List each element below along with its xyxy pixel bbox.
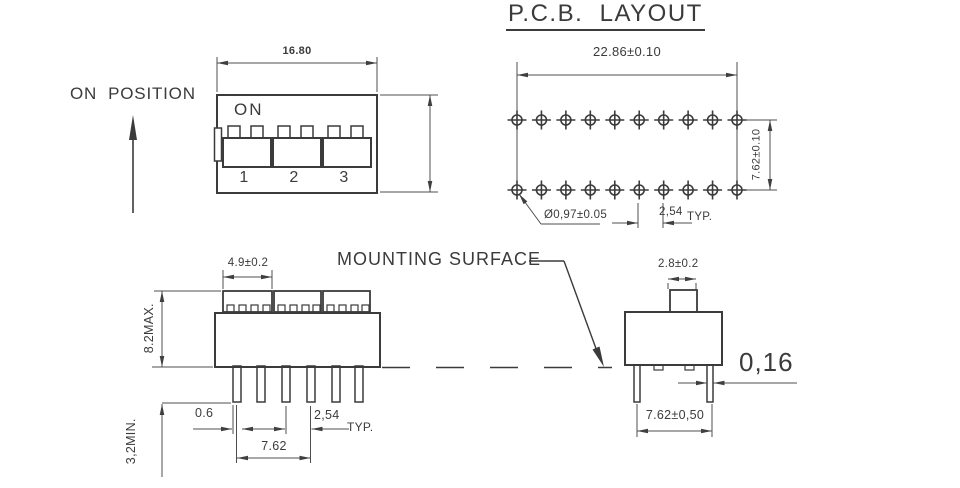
pcb-hole	[679, 181, 698, 200]
page-title: P.C.B. LAYOUT	[506, 2, 705, 31]
pcb-hole	[703, 111, 722, 130]
dim-pin-thickness: 0,16	[739, 349, 794, 375]
pcb-hole	[728, 181, 747, 200]
pcb-hole	[508, 181, 527, 200]
side-view-switch	[625, 290, 722, 402]
dim-pin-row-span: 7.62±0,50	[640, 409, 710, 422]
dim-body-width: 16.80	[279, 46, 315, 57]
dip-switch-technical-drawing: P.C.B. LAYOUT ON POSITION 16.80 ON 1 2 3…	[0, 0, 960, 488]
on-position-label: ON POSITION	[70, 85, 196, 102]
on-label: ON	[234, 101, 264, 118]
pcb-hole	[728, 111, 747, 130]
pcb-hole	[605, 111, 624, 130]
dim-hole-diameter: Ø0,97±0.05	[544, 210, 607, 222]
front-cap-teeth	[227, 305, 369, 312]
side-actuator	[670, 290, 697, 312]
dim-pin-length: 3,2MIN.	[125, 411, 138, 471]
leader-arrow-icon	[593, 347, 605, 368]
dim-hole-pitch: 2,54	[659, 207, 683, 219]
pcb-hole	[605, 181, 624, 200]
pcb-hole	[679, 111, 698, 130]
front-body	[215, 313, 380, 367]
side-notch	[215, 128, 222, 161]
pcb-hole	[556, 111, 575, 130]
switch-number-1: 1	[236, 170, 252, 186]
mounting-surface-label: MOUNTING SURFACE	[337, 250, 541, 268]
dim-actuator-width: 2.8±0.2	[658, 259, 698, 271]
pcb-hole	[703, 181, 722, 200]
dim-pin-pitch: 2,54	[314, 409, 340, 422]
actuator-sliders	[223, 138, 371, 167]
switch-number-2: 2	[286, 170, 302, 186]
pcb-hole	[508, 111, 527, 130]
front-view-dimensions	[152, 270, 349, 477]
side-body	[625, 312, 722, 365]
drawing-canvas	[0, 0, 960, 488]
pcb-hole	[630, 111, 649, 130]
pcb-hole	[581, 181, 600, 200]
pcb-hole	[532, 111, 551, 130]
pcb-hole	[654, 111, 673, 130]
on-position-arrow-icon	[129, 115, 137, 213]
dim-pcb-overall-width: 22.86±0.10	[575, 45, 679, 58]
pcb-hole	[581, 111, 600, 130]
pcb-layout-dimensions	[517, 62, 777, 228]
pcb-hole	[556, 181, 575, 200]
pcb-hole	[654, 181, 673, 200]
front-view-switch	[215, 291, 380, 402]
mounting-surface-leader	[382, 261, 612, 368]
dim-body-height: 8.2MAX.	[143, 298, 156, 358]
dim-pcb-row-spacing: 7.62±0.10	[752, 110, 763, 200]
actuator-tabs	[228, 126, 363, 138]
pcb-hole	[532, 181, 551, 200]
dim-hole-pitch-typ: TYP.	[687, 212, 712, 224]
dim-pin-group-span: 7.62	[256, 440, 292, 453]
dim-pin-pitch-typ: TYP.	[347, 421, 373, 433]
pcb-hole	[630, 181, 649, 200]
front-pins	[233, 366, 363, 402]
switch-number-3: 3	[336, 170, 352, 186]
dim-cap-width: 4.9±0.2	[224, 258, 272, 270]
dim-pin-width: 0.6	[195, 407, 213, 420]
pcb-hole-grid	[508, 111, 747, 200]
